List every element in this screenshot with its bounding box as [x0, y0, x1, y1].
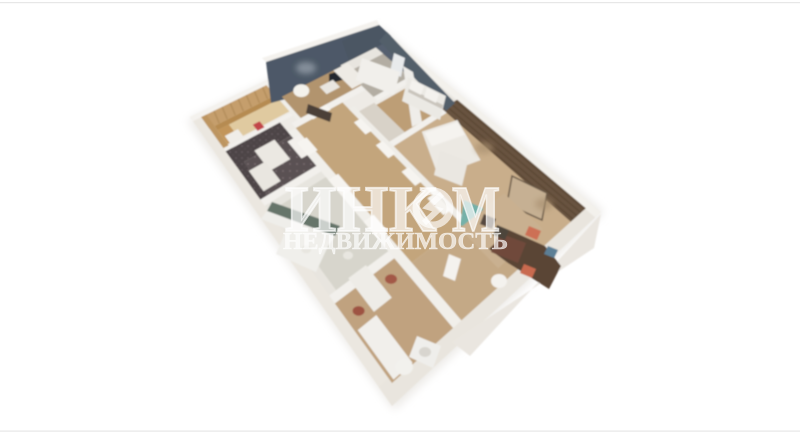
svg-text:НЕДВИЖИМОСТЬ: НЕДВИЖИМОСТЬ — [283, 229, 508, 255]
